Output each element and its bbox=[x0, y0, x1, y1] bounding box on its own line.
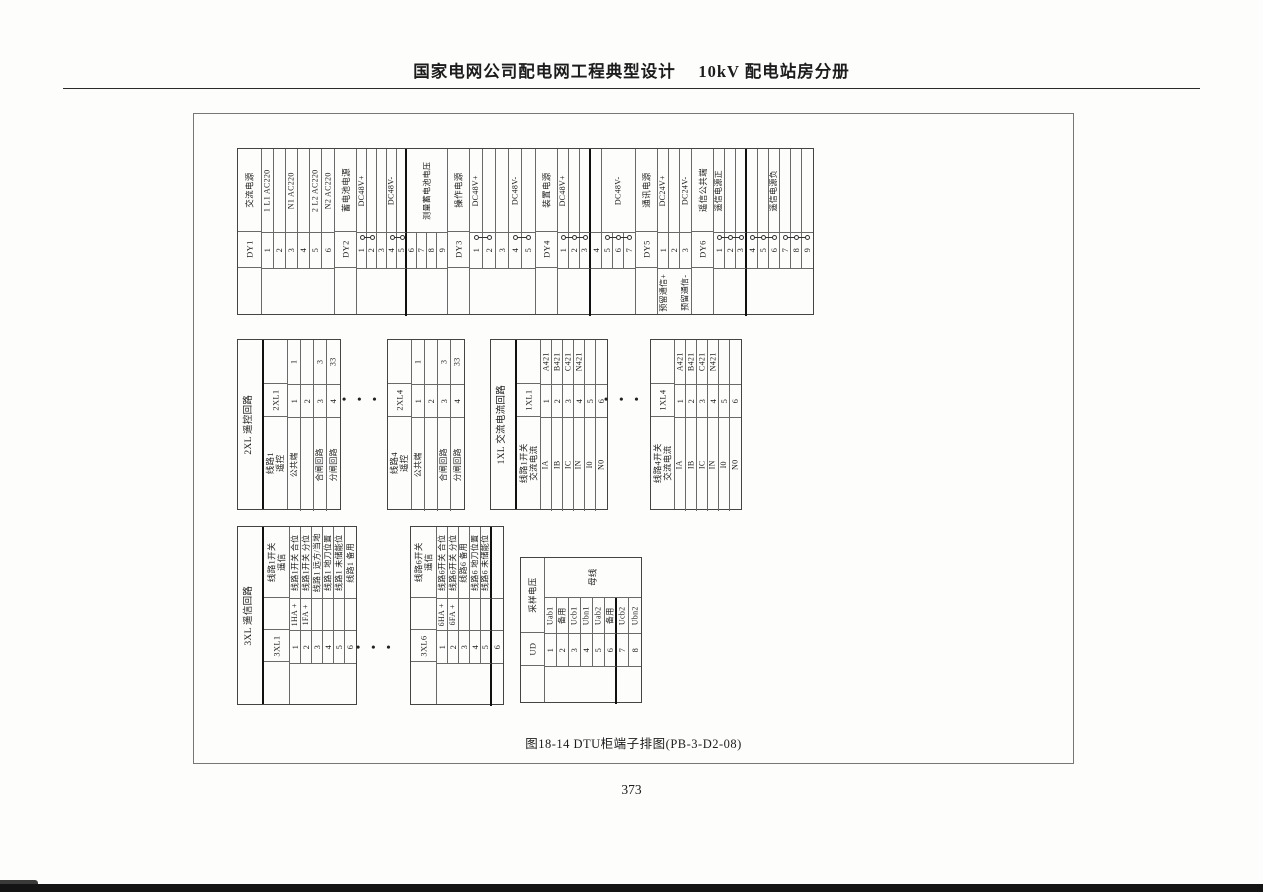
table-title: 3XL 遥信回路 bbox=[244, 586, 255, 646]
cell-desc bbox=[725, 149, 736, 233]
cell-wire: 1 bbox=[412, 340, 425, 385]
cell-desc: 2 L2 AC220 bbox=[310, 149, 322, 233]
group-header-col: 交流电源DY1 bbox=[238, 149, 262, 314]
cell-num: 5 bbox=[719, 385, 730, 418]
terminal-number: 7 bbox=[780, 248, 790, 253]
cell-desc bbox=[522, 149, 535, 233]
strip-name: DY2 bbox=[340, 241, 350, 258]
cell-tail bbox=[714, 269, 725, 316]
cell-desc: 公共端 bbox=[288, 418, 301, 511]
group-header-cell: 线路6开关 遥信 bbox=[411, 527, 436, 598]
terminal-tail-label: 预留通信- bbox=[681, 274, 691, 310]
terminal-desc-label: DC48V- bbox=[510, 176, 520, 205]
table-title-cell: 1XL 交流电流回路 bbox=[491, 340, 517, 509]
cell-desc: I0 bbox=[585, 418, 596, 511]
cell-num: 3 bbox=[459, 631, 470, 664]
cell-num: 2 bbox=[274, 233, 286, 269]
cell-desc bbox=[591, 149, 602, 233]
cell-tail bbox=[322, 269, 334, 316]
cell-desc: 公共端 bbox=[412, 418, 425, 511]
terminal-desc-label: DC24V- bbox=[681, 176, 691, 205]
cell-desc: Ubn1 bbox=[581, 598, 593, 634]
cell-desc: DC48V+ bbox=[357, 149, 367, 233]
group-header-cell bbox=[536, 268, 557, 314]
cell-num: 7 bbox=[617, 634, 629, 667]
cell-desc: Ucb1 bbox=[569, 598, 581, 634]
terminals-grid: DC24V+DC24V-123预留通信+预留通信- bbox=[658, 149, 691, 314]
terminal-desc-label: 线路1开关 合位 bbox=[290, 534, 300, 590]
cell-num: 4 bbox=[298, 233, 310, 269]
cell-num: 6 bbox=[345, 631, 356, 664]
cell-num: 4 bbox=[574, 385, 585, 418]
cell-tail bbox=[387, 269, 397, 316]
group-header-cell: 蓄电池电源 bbox=[335, 149, 356, 232]
group-header-cell: DY6 bbox=[692, 232, 713, 268]
strip-name: DY6 bbox=[697, 241, 707, 258]
cell-tail bbox=[569, 269, 580, 316]
terminal-number: 2 bbox=[569, 248, 579, 253]
cell-desc: 线路6开关 合位 bbox=[437, 527, 448, 599]
terminal-number: 5 bbox=[523, 248, 533, 253]
terminal-number: 5 bbox=[719, 399, 729, 404]
cell-wire bbox=[301, 340, 314, 385]
cell-num: 3 bbox=[569, 634, 581, 667]
terminal-group-DY4: 装置电源DY4DC48V+DC48V-1234567 bbox=[536, 149, 636, 314]
group-header-cell: 线路4 遥控 bbox=[388, 417, 411, 509]
cell-desc: 线路6 备用 bbox=[459, 527, 470, 599]
terminal-number: 1 bbox=[714, 248, 724, 253]
group-header-col: 采样电压UD bbox=[521, 558, 545, 702]
terminal-desc-label: 2 L2 AC220 bbox=[311, 169, 321, 212]
terminal-group-DY6: 遥信公共端DY6遥信电源正遥信电源负123456789 bbox=[692, 149, 813, 314]
strip-name: 3XL6 bbox=[418, 635, 428, 656]
cell-num: 4 bbox=[323, 631, 334, 664]
group-header-col: 1XL1线路1开关 交流电流 bbox=[517, 340, 541, 509]
terminal-wire-label: 1FA + bbox=[301, 604, 311, 625]
cell-tail bbox=[758, 269, 769, 316]
cell-desc bbox=[569, 149, 580, 233]
cell-desc: 线路1开关 分位 bbox=[301, 527, 312, 599]
terminal-wire-label: 1HA + bbox=[290, 603, 300, 626]
cell-desc: 线路1 备用 bbox=[345, 527, 356, 599]
cell-wire: N421 bbox=[574, 340, 585, 385]
cell-tail bbox=[522, 269, 535, 316]
cell-tail bbox=[357, 269, 367, 316]
table-title-cell: 3XL 遥信回路 bbox=[238, 527, 264, 704]
cell-wire: N421 bbox=[708, 340, 719, 385]
terminal-desc-label: 线路6开关 分位 bbox=[448, 534, 458, 590]
cell-desc: DC24V- bbox=[680, 149, 691, 233]
terminal-desc-label: 线路1 地刀位置 bbox=[323, 534, 333, 590]
cell-num: 1 bbox=[412, 385, 425, 418]
cell-num: 4 bbox=[747, 233, 758, 269]
cell-num: 9 bbox=[802, 233, 813, 269]
terminals-grid: 13331234公共端合闸回路分闸回路 bbox=[412, 340, 464, 509]
terminal-wire-label: 3 bbox=[439, 360, 449, 364]
terminal-group-1XL4: 1XL4线路4开关 交流电流A421B421C421N421123456IAIB… bbox=[651, 340, 741, 509]
terminal-desc-label: N0 bbox=[731, 459, 741, 469]
cell-desc: DC48V- bbox=[387, 149, 397, 233]
terminal-wire-label: 1 bbox=[289, 360, 299, 364]
terminal-desc-label: Ubn1 bbox=[582, 606, 592, 625]
cell-num: 8 bbox=[791, 233, 802, 269]
group-title: 装置电源 bbox=[541, 172, 551, 207]
cell-wire bbox=[730, 340, 741, 385]
cell-desc: DC24V+ bbox=[658, 149, 669, 233]
cell-num: 7 bbox=[780, 233, 791, 269]
cell-num: 3 bbox=[314, 385, 327, 418]
terminal-wire-label: C421 bbox=[697, 353, 707, 372]
cell-desc: 线路6 地刀位置 bbox=[470, 527, 481, 599]
group-header-col: 操作电源DY3 bbox=[448, 149, 470, 314]
cell-tail bbox=[605, 667, 617, 704]
group-header-col: 线路1开关 遥信3XL1 bbox=[264, 527, 290, 704]
terminal-number: 1 bbox=[289, 399, 299, 404]
cell-tail bbox=[312, 664, 323, 706]
terminal-number: 5 bbox=[310, 248, 320, 253]
cell-tail bbox=[509, 269, 522, 316]
group-header-cell bbox=[335, 268, 356, 314]
terminals-grid: DC48V+DC48V-1234567 bbox=[558, 149, 635, 314]
cell-wire bbox=[345, 599, 356, 631]
cell-desc bbox=[298, 149, 310, 233]
cell-num: 5 bbox=[334, 631, 345, 664]
terminal-wire-label: C421 bbox=[563, 353, 573, 372]
cell-tail bbox=[470, 269, 483, 316]
terminal-desc-label: DC48V+ bbox=[357, 175, 367, 206]
cell-wire: 6FA + bbox=[448, 599, 459, 631]
cell-tail bbox=[769, 269, 780, 316]
cell-num: 1 bbox=[470, 233, 483, 269]
group-title: 采样电压 bbox=[527, 577, 537, 612]
cell-desc: IC bbox=[697, 418, 708, 511]
terminal-desc-label: 线路1 未储能位 bbox=[334, 534, 344, 590]
cell-desc: IN bbox=[708, 418, 719, 511]
cell-wire: B421 bbox=[552, 340, 563, 385]
group-header-cell: 线路4开关 交流电流 bbox=[651, 417, 674, 509]
terminal-number: 5 bbox=[480, 645, 490, 650]
terminal-number: 5 bbox=[396, 248, 406, 253]
cell-num: 2 bbox=[301, 631, 312, 664]
cell-num: 4 bbox=[581, 634, 593, 667]
terminal-number: 3 bbox=[286, 248, 296, 253]
cell-desc: 分闸回路 bbox=[327, 418, 340, 511]
group-header-cell: 3XL6 bbox=[411, 630, 436, 663]
cell-num: 7 bbox=[624, 233, 635, 269]
terminal-number: 1 bbox=[413, 399, 423, 404]
terminal-table-3xl1: 3XL 遥信回路线路1开关 遥信3XL1线路1开关 合位线路1开关 分位线路1 … bbox=[237, 526, 357, 705]
cell-tail bbox=[591, 269, 602, 316]
strip-name: DY4 bbox=[541, 241, 551, 258]
cell-desc: I0 bbox=[719, 418, 730, 511]
cell-num: 3 bbox=[563, 385, 574, 418]
terminal-desc-label: IA bbox=[541, 460, 551, 469]
terminal-desc-label: 分闸回路 bbox=[329, 448, 339, 481]
cell-tail bbox=[557, 667, 569, 704]
terminal-number: 1 bbox=[356, 248, 366, 253]
terminal-wire-label: A421 bbox=[675, 353, 685, 372]
cell-tail bbox=[558, 269, 569, 316]
cell-num: 4 bbox=[591, 233, 602, 269]
cell-desc bbox=[367, 149, 377, 233]
cell-desc bbox=[425, 418, 438, 511]
terminal-number: 4 bbox=[510, 248, 520, 253]
group-header-cell bbox=[521, 666, 544, 702]
terminal-number: 4 bbox=[591, 248, 601, 253]
cell-desc bbox=[747, 149, 758, 233]
terminal-number: 6 bbox=[406, 248, 416, 253]
terminal-number: 2 bbox=[301, 645, 311, 650]
group-header-cell: 操作电源 bbox=[448, 149, 469, 232]
cell-num: 5 bbox=[585, 385, 596, 418]
cell-desc: 1 L1 AC220 bbox=[262, 149, 274, 233]
cell-num: 1 bbox=[437, 631, 448, 664]
cell-desc: DC48V+ bbox=[558, 149, 569, 233]
terminal-number: 3 bbox=[312, 645, 322, 650]
terminal-number: 8 bbox=[426, 248, 436, 253]
cell-desc bbox=[301, 418, 314, 511]
terminals-grid: 13331234公共端合闸回路分闸回路 bbox=[288, 340, 340, 509]
cell-tail bbox=[470, 664, 481, 706]
cell-wire: B421 bbox=[686, 340, 697, 385]
cell-wire: 33 bbox=[451, 340, 464, 385]
cell-wire: 3 bbox=[438, 340, 451, 385]
group-header-cell bbox=[692, 268, 713, 314]
terminal-number: 9 bbox=[802, 248, 812, 253]
group-header-cell: 2XL4 bbox=[388, 384, 411, 417]
continuation-dots: • • • bbox=[356, 640, 395, 655]
terminal-desc-label: IA bbox=[675, 460, 685, 469]
group-header-cell: 采样电压 bbox=[521, 558, 544, 633]
terminal-desc-label: IC bbox=[697, 460, 707, 469]
terminal-desc-label: N2 AC220 bbox=[323, 172, 333, 209]
cell-num: 4 bbox=[451, 385, 464, 418]
group-title: 线路1开关 遥信 bbox=[266, 542, 286, 582]
scan-artifact-bottom-edge bbox=[0, 884, 1263, 892]
page-header-title: 国家电网公司配电网工程典型设计 10kV 配电站房分册 bbox=[0, 58, 1263, 82]
table-title: 1XL 交流电流回路 bbox=[497, 385, 508, 464]
terminal-group-DY5: 通讯电源DY5DC24V+DC24V-123预留通信+预留通信- bbox=[636, 149, 692, 314]
strip-name: 2XL4 bbox=[394, 390, 404, 411]
group-header-cell: DY5 bbox=[636, 232, 657, 268]
terminal-number: 7 bbox=[416, 248, 426, 253]
terminal-number: 3 bbox=[569, 648, 579, 653]
strip-name: DY5 bbox=[641, 241, 651, 258]
group-header-col: 线路6开关 遥信3XL6 bbox=[411, 527, 437, 704]
cell-num: 6 bbox=[613, 233, 624, 269]
terminal-number: 4 bbox=[386, 248, 396, 253]
group-title: 遥信公共端 bbox=[697, 168, 707, 212]
group-header-cell bbox=[264, 598, 289, 630]
group-header-cell: 遥信公共端 bbox=[692, 149, 713, 232]
group-title: 线路6开关 遥信 bbox=[413, 542, 433, 582]
terminals-grid: DC48V+DC48V-12345 bbox=[470, 149, 535, 314]
strip-name: 3XL1 bbox=[271, 635, 281, 656]
terminal-desc-label: 备用 bbox=[605, 607, 615, 624]
terminal-wire-label: 3 bbox=[315, 360, 325, 364]
group-header-col: 遥信公共端DY6 bbox=[692, 149, 714, 314]
terminal-table-1xl1: 1XL 交流电流回路1XL1线路1开关 交流电流A421B421C421N421… bbox=[490, 339, 608, 510]
strip-name: DY3 bbox=[453, 241, 463, 258]
terminal-number: 4 bbox=[328, 399, 338, 404]
cell-num: 4 bbox=[509, 233, 522, 269]
group-header-cell bbox=[411, 662, 436, 704]
cell-tail bbox=[274, 269, 286, 316]
strip-name: 1XL4 bbox=[657, 390, 667, 411]
cell-tail bbox=[617, 667, 629, 704]
cell-wire bbox=[312, 599, 323, 631]
terminal-wire-label: 6HA + bbox=[437, 603, 447, 626]
terminal-desc-label: 遥信电源负 bbox=[769, 170, 779, 212]
cell-tail bbox=[613, 269, 624, 316]
cell-num: 1 bbox=[714, 233, 725, 269]
terminal-number: 3 bbox=[735, 248, 745, 253]
cell-num: 1 bbox=[558, 233, 569, 269]
cell-tail bbox=[417, 269, 427, 316]
cell-num: 3 bbox=[736, 233, 747, 269]
terminal-desc-label: 线路6 未储能位 bbox=[481, 534, 491, 590]
cell-desc: 备用 bbox=[605, 598, 617, 634]
cell-desc: N2 AC220 bbox=[322, 149, 334, 233]
cell-num: 6 bbox=[605, 634, 617, 667]
terminal-number: 2 bbox=[725, 248, 735, 253]
cell-tail bbox=[345, 664, 356, 706]
cell-num: 6 bbox=[730, 385, 741, 418]
terminal-number: 6 bbox=[323, 248, 333, 253]
figure-caption: 图18-14 DTU柜端子排图(PB-3-D2-08) bbox=[193, 733, 1074, 752]
terminal-desc-label: 合闸回路 bbox=[315, 448, 325, 481]
cell-desc bbox=[736, 149, 747, 233]
cell-desc: Ucb2 bbox=[617, 598, 629, 634]
cell-wire bbox=[459, 599, 470, 631]
terminal-number: 1 bbox=[675, 399, 685, 404]
group-header-cell: 线路1 遥控 bbox=[264, 417, 287, 509]
terminal-group-DY2: 蓄电池电源DY2DC48V+DC48V-测量蓄电池电压123456789 bbox=[335, 149, 448, 314]
cell-tail bbox=[397, 269, 407, 316]
cell-wire bbox=[470, 599, 481, 631]
cell-tail bbox=[802, 269, 813, 316]
table-title-cell: 2XL 遥控回路 bbox=[238, 340, 264, 509]
terminal-number: 4 bbox=[581, 648, 591, 653]
group-header-cell: DY4 bbox=[536, 232, 557, 268]
cell-tail: 预留通信+ bbox=[658, 269, 669, 316]
group-title: 操作电源 bbox=[453, 172, 463, 207]
terminal-number: 2 bbox=[686, 399, 696, 404]
group-header-cell bbox=[388, 340, 411, 384]
cell-tail bbox=[483, 269, 496, 316]
cell-num: 1 bbox=[288, 385, 301, 418]
group-header-cell bbox=[517, 340, 540, 384]
cell-desc: 测量蓄电池电压 bbox=[407, 149, 447, 233]
cell-num: 2 bbox=[686, 385, 697, 418]
terminal-number: 6 bbox=[730, 399, 740, 404]
group-title: 线路4开关 交流电流 bbox=[652, 443, 672, 483]
terminal-number: 5 bbox=[602, 248, 612, 253]
terminal-desc-label: 分闸回路 bbox=[453, 448, 463, 481]
cell-num: 5 bbox=[758, 233, 769, 269]
cell-desc bbox=[780, 149, 791, 233]
group-header-cell: DY1 bbox=[238, 232, 261, 268]
terminal-number: 2 bbox=[484, 248, 494, 253]
cell-desc: 线路1开关 合位 bbox=[290, 527, 301, 599]
cell-num: 1 bbox=[545, 634, 557, 667]
cell-tail bbox=[602, 269, 613, 316]
terminal-desc-label: IC bbox=[563, 460, 573, 469]
terminal-desc-label: Ubn2 bbox=[630, 606, 640, 625]
cell-wire bbox=[334, 599, 345, 631]
terminal-number: 1 bbox=[658, 248, 668, 253]
terminal-wire-label: A421 bbox=[541, 353, 551, 372]
group-title: 通讯电源 bbox=[641, 172, 651, 207]
terminal-number: 7 bbox=[617, 648, 627, 653]
cell-wire bbox=[585, 340, 596, 385]
terminal-desc-label: DC48V+ bbox=[558, 175, 568, 206]
cell-tail bbox=[569, 667, 581, 704]
group-header-cell bbox=[636, 268, 657, 314]
terminal-group-3XL1: 线路1开关 遥信3XL1线路1开关 合位线路1开关 分位线路1 远方/当地线路1… bbox=[264, 527, 356, 704]
cell-num: 8 bbox=[427, 233, 437, 269]
cell-num: 4 bbox=[708, 385, 719, 418]
cell-wire bbox=[596, 340, 607, 385]
cell-desc: 分闸回路 bbox=[451, 418, 464, 511]
cell-num: 2 bbox=[483, 233, 496, 269]
cell-num: 1 bbox=[290, 631, 301, 664]
strip-name: 2XL1 bbox=[270, 390, 280, 411]
continuation-dots: • • • bbox=[342, 392, 381, 407]
subheader-cell: 母线 bbox=[545, 558, 641, 598]
cell-num: 3 bbox=[286, 233, 298, 269]
cell-tail bbox=[580, 269, 591, 316]
terminal-wire-label: 33 bbox=[329, 358, 339, 367]
cell-desc: 线路1 未储能位 bbox=[334, 527, 345, 599]
terminal-desc-label: N0 bbox=[597, 459, 607, 469]
cell-num: 2 bbox=[448, 631, 459, 664]
terminal-table-3xl6: 线路6开关 遥信3XL6线路6开关 合位线路6开关 分位线路6 备用线路6 地刀… bbox=[410, 526, 504, 705]
terminal-wire-label: N421 bbox=[574, 353, 584, 372]
terminal-number: 3 bbox=[439, 399, 449, 404]
cell-wire bbox=[425, 340, 438, 385]
terminal-desc-label: DC48V- bbox=[387, 176, 397, 205]
terminal-number: 4 bbox=[708, 399, 718, 404]
terminal-desc-label: 备用 bbox=[558, 607, 568, 624]
cell-wire bbox=[323, 599, 334, 631]
strip-name: DY1 bbox=[244, 241, 254, 258]
terminal-wire-label: B421 bbox=[686, 353, 696, 372]
terminal-number: 3 bbox=[497, 248, 507, 253]
group-title: 线路1开关 交流电流 bbox=[518, 443, 538, 483]
cell-num: 5 bbox=[602, 233, 613, 269]
cell-tail: 预留通信- bbox=[680, 269, 691, 316]
group-header-cell: 2XL1 bbox=[264, 384, 287, 417]
terminal-number: 6 bbox=[345, 645, 355, 650]
cell-num: 5 bbox=[522, 233, 535, 269]
cell-num: 5 bbox=[481, 631, 492, 664]
terminal-desc-label: 测量蓄电池电压 bbox=[422, 161, 432, 219]
cell-desc: IB bbox=[552, 418, 563, 511]
terminal-wire-label: N421 bbox=[708, 353, 718, 372]
terminal-number: 4 bbox=[470, 645, 480, 650]
terminal-group-DY3: 操作电源DY3DC48V+DC48V-12345 bbox=[448, 149, 536, 314]
terminals-grid: 线路1开关 合位线路1开关 分位线路1 远方/当地线路1 地刀位置线路1 未储能… bbox=[290, 527, 356, 704]
terminal-desc-label: DC48V+ bbox=[471, 175, 481, 206]
terminal-number: 4 bbox=[298, 248, 308, 253]
terminal-table-1xl4: 1XL4线路4开关 交流电流A421B421C421N421123456IAIB… bbox=[650, 339, 742, 510]
cell-desc: Ubn2 bbox=[629, 598, 641, 634]
terminals-grid: DC48V+DC48V-测量蓄电池电压123456789 bbox=[357, 149, 447, 314]
cell-num: 6 bbox=[769, 233, 780, 269]
group-header-cell: 线路1开关 交流电流 bbox=[517, 417, 540, 509]
terminal-desc-label: 线路1开关 分位 bbox=[301, 534, 311, 590]
